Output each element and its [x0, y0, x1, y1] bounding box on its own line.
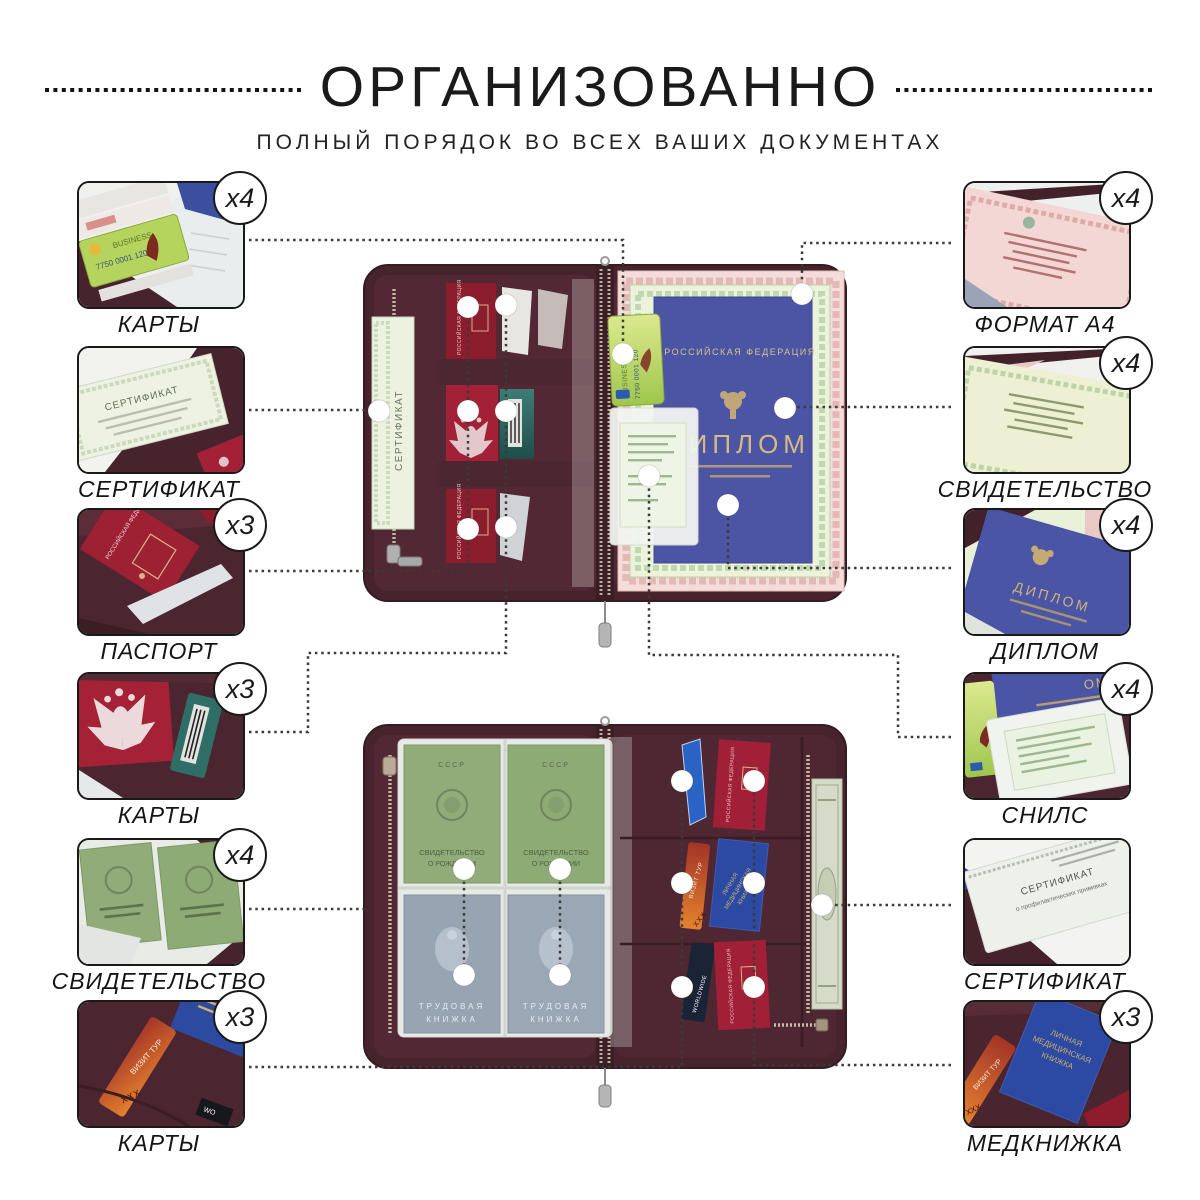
passport-row3: РОССИЙСКАЯ ФЕДЕРАЦИЯ — [714, 940, 771, 1031]
plastic-file-edge — [572, 279, 594, 587]
organizer-photo-top: СЕРТИФИКАТ РОССИЙСКАЯ ФЕДЕРАЦИЯ РОССИЙСК… — [358, 253, 852, 663]
count-badge: x3 — [1099, 990, 1153, 1044]
callout-diploma: ДИПЛОМ x4 ДИПЛОМ — [963, 508, 1127, 636]
callout-label: КАРТЫ — [39, 799, 279, 831]
passport-row1: РОССИЙСКАЯ ФЕДЕРАЦИЯ — [713, 739, 771, 830]
thumbnail-certificate: СЕРТИФИКАТ — [77, 346, 245, 474]
count-badge: x3 — [213, 990, 267, 1044]
bank-card-green: BUSINESS 7750 0001 120 — [608, 314, 665, 407]
med-book: ЛИЧНАЯ МЕДИЦИНСКАЯ КНИЖКА — [710, 839, 769, 932]
page-subtitle: ПОЛНЫЙ ПОРЯДОК ВО ВСЕХ ВАШИХ ДОКУМЕНТАХ — [0, 131, 1200, 155]
svg-text:КНИЖКА: КНИЖКА — [530, 1015, 582, 1024]
thumbnail-vaccination-certificate: СЕРТИФИКАТ о профилактических прививках — [963, 838, 1131, 966]
svg-text:СВИДЕТЕЛЬСТВО: СВИДЕТЕЛЬСТВО — [523, 848, 589, 857]
svg-text:О РОЖДЕНИИ: О РОЖДЕНИИ — [428, 861, 476, 868]
svg-text:СССР: СССР — [542, 762, 570, 769]
zipper-pull-top — [601, 257, 609, 265]
callout-label: КАРТЫ — [39, 1127, 279, 1159]
passport-bottom: РОССИЙСКАЯ ФЕДЕРАЦИЯ — [446, 484, 496, 563]
callout-cards-top: BUSINESS 7750 0001 120 x4 КАРТЫ — [77, 181, 241, 309]
page-title: ОРГАНИЗОВАННО — [0, 54, 1200, 120]
infographic-canvas: ОРГАНИЗОВАННО ПОЛНЫЙ ПОРЯДОК ВО ВСЕХ ВАШ… — [0, 0, 1200, 1200]
callout-label: КАРТЫ — [39, 308, 279, 340]
banknote — [812, 779, 842, 1009]
callout-medbook: ЛИЧНАЯ МЕДИЦИНСКАЯ КНИЖКА ВИЗИТ ТУР XXX … — [963, 1000, 1127, 1128]
left-zipper-slider — [383, 757, 396, 775]
zipper-pull-bottom — [599, 623, 611, 647]
callout-birth-certificate: x4 СВИДЕТЕЛЬСТВО — [77, 838, 241, 966]
callout-passport: РОССИЙСКАЯ ФЕДЕРАЦИЯ x3 ПАСПОРТ — [77, 508, 241, 636]
callout-format-a4: x4 ФОРМАТ А4 — [963, 181, 1127, 309]
passport-middle — [446, 385, 498, 461]
callout-cards-x3: x3 КАРТЫ — [77, 672, 241, 800]
card-slot-teal — [500, 389, 534, 459]
svg-text:О РОЖДЕНИИ: О РОЖДЕНИИ — [532, 861, 580, 868]
callout-certificate-right: СЕРТИФИКАТ о профилактических прививках … — [963, 838, 1127, 966]
snils-holder — [610, 408, 698, 545]
birth-certificate-2: СССР СВИДЕТЕЛЬСТВО О РОЖДЕНИИ — [508, 745, 604, 883]
passport-top: РОССИЙСКАЯ ФЕДЕРАЦИЯ — [446, 280, 496, 359]
birth-certificate-1: СССР СВИДЕТЕЛЬСТВО О РОЖДЕНИИ — [404, 745, 500, 883]
red-passport-eagle — [79, 674, 174, 768]
zipper-pull-bottom — [599, 1085, 611, 1107]
count-badge: x4 — [213, 171, 267, 225]
count-badge: x3 — [213, 662, 267, 716]
work-book-2: ТРУДОВАЯ КНИЖКА — [508, 895, 604, 1033]
count-badge: x4 — [1099, 336, 1153, 390]
svg-text:СЕРТИФИКАТ: СЕРТИФИКАТ — [394, 390, 405, 471]
organizer-photo-bottom: СССР СВИДЕТЕЛЬСТВО О РОЖДЕНИИ СССР СВИДЕ… — [358, 713, 852, 1108]
svg-text:ТРУДОВАЯ: ТРУДОВАЯ — [523, 1002, 590, 1011]
count-badge: x4 — [1099, 171, 1153, 225]
svg-text:РОССИЙСКАЯ ФЕДЕРАЦИЯ: РОССИЙСКАЯ ФЕДЕРАЦИЯ — [455, 280, 463, 355]
svg-text:РОССИЙСКАЯ ФЕДЕРАЦИЯ: РОССИЙСКАЯ ФЕДЕРАЦИЯ — [664, 346, 815, 357]
svg-text:СССР: СССР — [438, 762, 466, 769]
callout-label: МЕДКНИЖКА — [925, 1127, 1165, 1159]
count-badge: x4 — [1099, 498, 1153, 552]
card-logo — [616, 389, 630, 399]
count-badge: x4 — [1099, 662, 1153, 716]
svg-text:РОССИЙСКАЯ ФЕДЕРАЦИЯ: РОССИЙСКАЯ ФЕДЕРАЦИЯ — [455, 484, 463, 559]
plastic-file-edge — [610, 737, 632, 1047]
certificate-document: СЕРТИФИКАТ — [372, 317, 414, 529]
count-badge: x3 — [213, 498, 267, 552]
callout-label: СНИЛС — [925, 799, 1165, 831]
work-book-1: ТРУДОВАЯ КНИЖКА — [404, 895, 500, 1033]
callout-certificate-left: СЕРТИФИКАТ СЕРТИФИКАТ — [77, 346, 241, 474]
svg-text:КНИЖКА: КНИЖКА — [426, 1015, 478, 1024]
count-badge: x4 — [213, 828, 267, 882]
zipper-pull-top — [601, 717, 609, 725]
left-zipper-pull — [398, 557, 422, 566]
svg-text:СВИДЕТЕЛЬСТВО: СВИДЕТЕЛЬСТВО — [419, 848, 485, 857]
callout-snils: ОМ x4 СНИЛС — [963, 672, 1127, 800]
svg-text:ТРУДОВАЯ: ТРУДОВАЯ — [419, 1002, 486, 1011]
callout-certificate-a4: x4 СВИДЕТЕЛЬСТВО — [963, 346, 1127, 474]
callout-cards-bottom: ВИЗИТ ТУР XXX WO x3 КАРТЫ — [77, 1000, 241, 1128]
card-slot-white — [502, 287, 532, 355]
